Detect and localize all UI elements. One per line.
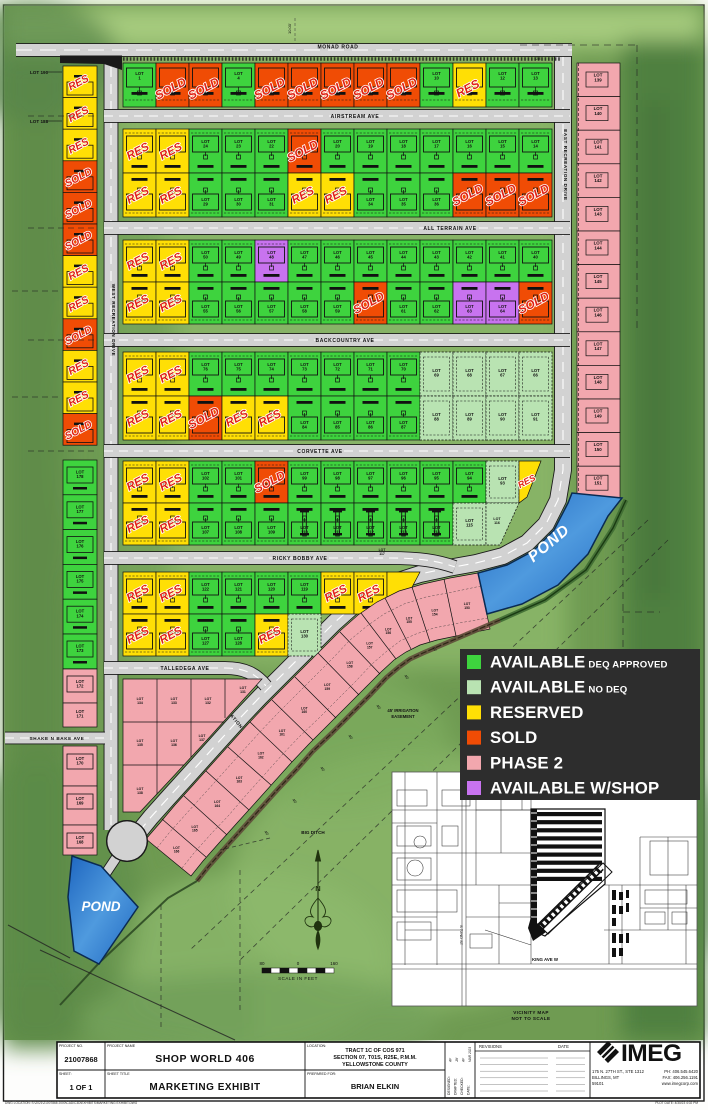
svg-text:REVISIONS: REVISIONS <box>479 1044 502 1049</box>
svg-text:LOT121: LOT121 <box>234 582 243 592</box>
svg-text:28': 28' <box>536 56 541 61</box>
svg-text:LOT143: LOT143 <box>594 207 603 217</box>
svg-text:MAR 2023: MAR 2023 <box>468 1047 472 1062</box>
svg-text:VICINITY MAP: VICINITY MAP <box>513 1010 549 1015</box>
svg-text:PHASE 2: PHASE 2 <box>490 753 563 772</box>
svg-text:1 OF 1: 1 OF 1 <box>70 1083 93 1092</box>
svg-text:NOT TO SCALE: NOT TO SCALE <box>512 1016 551 1021</box>
svg-text:10.00': 10.00' <box>287 23 292 34</box>
svg-text:LOT108: LOT108 <box>234 525 243 535</box>
svg-text:LOT173: LOT173 <box>76 644 85 654</box>
svg-text:LOT150: LOT150 <box>594 442 603 452</box>
svg-text:RESERVED: RESERVED <box>490 703 584 722</box>
svg-text:LOT168: LOT168 <box>76 835 85 845</box>
svg-text:TALLEDEGA AVE: TALLEDEGA AVE <box>161 666 210 672</box>
svg-text:PLOT DATE: 4/30/23 4:02 PM: PLOT DATE: 4/30/23 4:02 PM <box>655 1101 698 1105</box>
svg-text:MONAD ROAD: MONAD ROAD <box>318 45 359 51</box>
svg-text:LOT170: LOT170 <box>76 756 85 766</box>
svg-text:LOT115: LOT115 <box>465 518 474 528</box>
svg-text:www.imegcorp.com: www.imegcorp.com <box>662 1081 699 1086</box>
svg-text:EASEMENT: EASEMENT <box>391 714 415 719</box>
svg-text:TRACT 1C OF COS 971: TRACT 1C OF COS 971 <box>345 1048 404 1054</box>
svg-text:LOT141: LOT141 <box>594 140 603 150</box>
svg-text:DWG LOCATION: S:\2021\21007868: DWG LOCATION: S:\2021\21007868 2000\CAD\… <box>5 1101 138 1105</box>
svg-text:BILLINGS, MT: BILLINGS, MT <box>592 1075 620 1080</box>
svg-text:LOT107: LOT107 <box>201 525 210 535</box>
svg-text:160: 160 <box>330 961 338 966</box>
svg-text:LOT175: LOT175 <box>76 574 85 584</box>
svg-text:CHECKED:: CHECKED: <box>460 1077 464 1095</box>
svg-text:PREPARED FOR:: PREPARED FOR: <box>307 1072 336 1076</box>
svg-text:POND: POND <box>81 899 120 914</box>
svg-text:SHEET:: SHEET: <box>59 1072 72 1076</box>
svg-text:BIG DITCH: BIG DITCH <box>301 830 325 835</box>
svg-text:PROJECT NO.: PROJECT NO. <box>59 1044 83 1048</box>
svg-text:LOT122: LOT122 <box>201 582 210 592</box>
svg-text:KING AVE W: KING AVE W <box>532 957 559 962</box>
svg-text:SHEET TITLE: SHEET TITLE <box>107 1072 130 1076</box>
svg-text:21007868: 21007868 <box>64 1055 97 1064</box>
svg-text:AIRSTREAM AVE: AIRSTREAM AVE <box>331 114 380 120</box>
svg-text:LOT155: LOT155 <box>406 617 413 625</box>
svg-text:LOT161: LOT161 <box>279 729 286 737</box>
svg-text:LOT172: LOT172 <box>76 679 85 689</box>
svg-text:SHAKE N BAKE AVE: SHAKE N BAKE AVE <box>30 736 85 741</box>
svg-text:MARKETING EXHIBIT: MARKETING EXHIBIT <box>149 1082 260 1093</box>
svg-text:LOT159: LOT159 <box>324 683 331 691</box>
svg-text:EAST RECREATION DRIVE: EAST RECREATION DRIVE <box>563 129 568 200</box>
svg-text:LOT144: LOT144 <box>594 241 603 251</box>
svg-text:PROJECT NAME: PROJECT NAME <box>107 1044 136 1048</box>
svg-text:WEST RECREATION DRIVE: WEST RECREATION DRIVE <box>111 284 116 357</box>
svg-text:LOT130: LOT130 <box>300 629 309 639</box>
svg-text:LOT 190: LOT 190 <box>30 70 49 75</box>
svg-text:LOT149: LOT149 <box>594 409 603 419</box>
svg-text:LOT140: LOT140 <box>594 106 603 116</box>
svg-text:LOT169: LOT169 <box>76 796 85 806</box>
svg-text:LOT154: LOT154 <box>432 609 439 617</box>
svg-text:LOT162: LOT162 <box>258 752 265 760</box>
svg-text:LOT156: LOT156 <box>385 627 392 635</box>
svg-text:LOT171: LOT171 <box>76 709 85 719</box>
svg-text:LOT127: LOT127 <box>201 636 210 646</box>
svg-text:59101: 59101 <box>592 1081 604 1086</box>
svg-text:LOT147: LOT147 <box>594 341 603 351</box>
svg-text:SOLD: SOLD <box>490 728 537 747</box>
svg-text:DRAFTED:: DRAFTED: <box>454 1078 458 1095</box>
svg-text:LOT146: LOT146 <box>594 308 603 318</box>
svg-text:LOT 188: LOT 188 <box>30 119 49 124</box>
svg-text:FAX: 406.256.1191: FAX: 406.256.1191 <box>662 1075 698 1080</box>
svg-text:SCALE IN FEET: SCALE IN FEET <box>278 976 318 981</box>
svg-text:LOT178: LOT178 <box>76 470 85 480</box>
svg-text:DATE: DATE <box>558 1044 569 1049</box>
svg-text:LOT174: LOT174 <box>76 609 85 619</box>
svg-text:PH: 406.545.6420: PH: 406.545.6420 <box>664 1069 698 1074</box>
svg-text:SHOP WORLD 406: SHOP WORLD 406 <box>155 1053 255 1065</box>
svg-text:LOT142: LOT142 <box>594 173 603 183</box>
svg-text:LOT151: LOT151 <box>594 476 603 486</box>
svg-text:RICKY BOBBY AVE: RICKY BOBBY AVE <box>273 556 328 562</box>
svg-text:LOT139: LOT139 <box>594 73 603 83</box>
svg-text:LOT165: LOT165 <box>192 825 199 833</box>
svg-text:ALL TERRAIN AVE: ALL TERRAIN AVE <box>423 226 476 232</box>
svg-text:SECTION 07, T01S, R25E, P.M.M.: SECTION 07, T01S, R25E, P.M.M. <box>333 1055 417 1061</box>
svg-text:LOT177: LOT177 <box>76 504 85 514</box>
svg-text:BRIAN ELKIN: BRIAN ELKIN <box>351 1082 399 1091</box>
svg-text:LOCATION:: LOCATION: <box>307 1044 326 1048</box>
svg-text:LOT163: LOT163 <box>236 776 243 784</box>
svg-text:LOT153: LOT153 <box>464 602 471 610</box>
svg-text:LOT158: LOT158 <box>347 661 354 669</box>
svg-text:LOT166: LOT166 <box>173 846 180 854</box>
svg-text:LOT119: LOT119 <box>300 582 309 592</box>
svg-text:LOT176: LOT176 <box>76 539 85 549</box>
svg-text:IMEG: IMEG <box>621 1040 682 1067</box>
svg-text:CORVETTE AVE: CORVETTE AVE <box>297 449 343 455</box>
svg-text:DATE:: DATE: <box>467 1085 471 1095</box>
svg-text:80: 80 <box>259 961 265 966</box>
svg-text:45' IRRIGATION: 45' IRRIGATION <box>387 708 418 713</box>
svg-text:LOT148: LOT148 <box>594 375 603 385</box>
svg-text:LOT157: LOT157 <box>366 642 373 650</box>
svg-text:S 72ND ST: S 72ND ST <box>459 925 464 946</box>
svg-text:AVAILABLE W/SHOP: AVAILABLE W/SHOP <box>490 779 659 798</box>
svg-text:YELLOWSTONE COUNTY: YELLOWSTONE COUNTY <box>342 1062 408 1068</box>
svg-text:BACKCOUNTRY AVE: BACKCOUNTRY AVE <box>315 338 374 344</box>
svg-text:LOT120: LOT120 <box>267 582 276 592</box>
svg-text:LOT145: LOT145 <box>594 274 603 284</box>
svg-text:175 N. 27TH ST., STE 1312: 175 N. 27TH ST., STE 1312 <box>592 1069 645 1074</box>
svg-text:JM: JM <box>455 1057 459 1062</box>
svg-text:LOT101: LOT101 <box>234 471 243 481</box>
svg-text:LOT160: LOT160 <box>301 706 308 714</box>
svg-text:LOT109: LOT109 <box>267 525 276 535</box>
svg-text:DESIGNED:: DESIGNED: <box>447 1076 451 1095</box>
svg-text:N: N <box>315 884 320 893</box>
svg-text:LOT102: LOT102 <box>201 471 210 481</box>
svg-text:LOT128: LOT128 <box>234 636 243 646</box>
svg-text:LOT164: LOT164 <box>214 800 221 808</box>
